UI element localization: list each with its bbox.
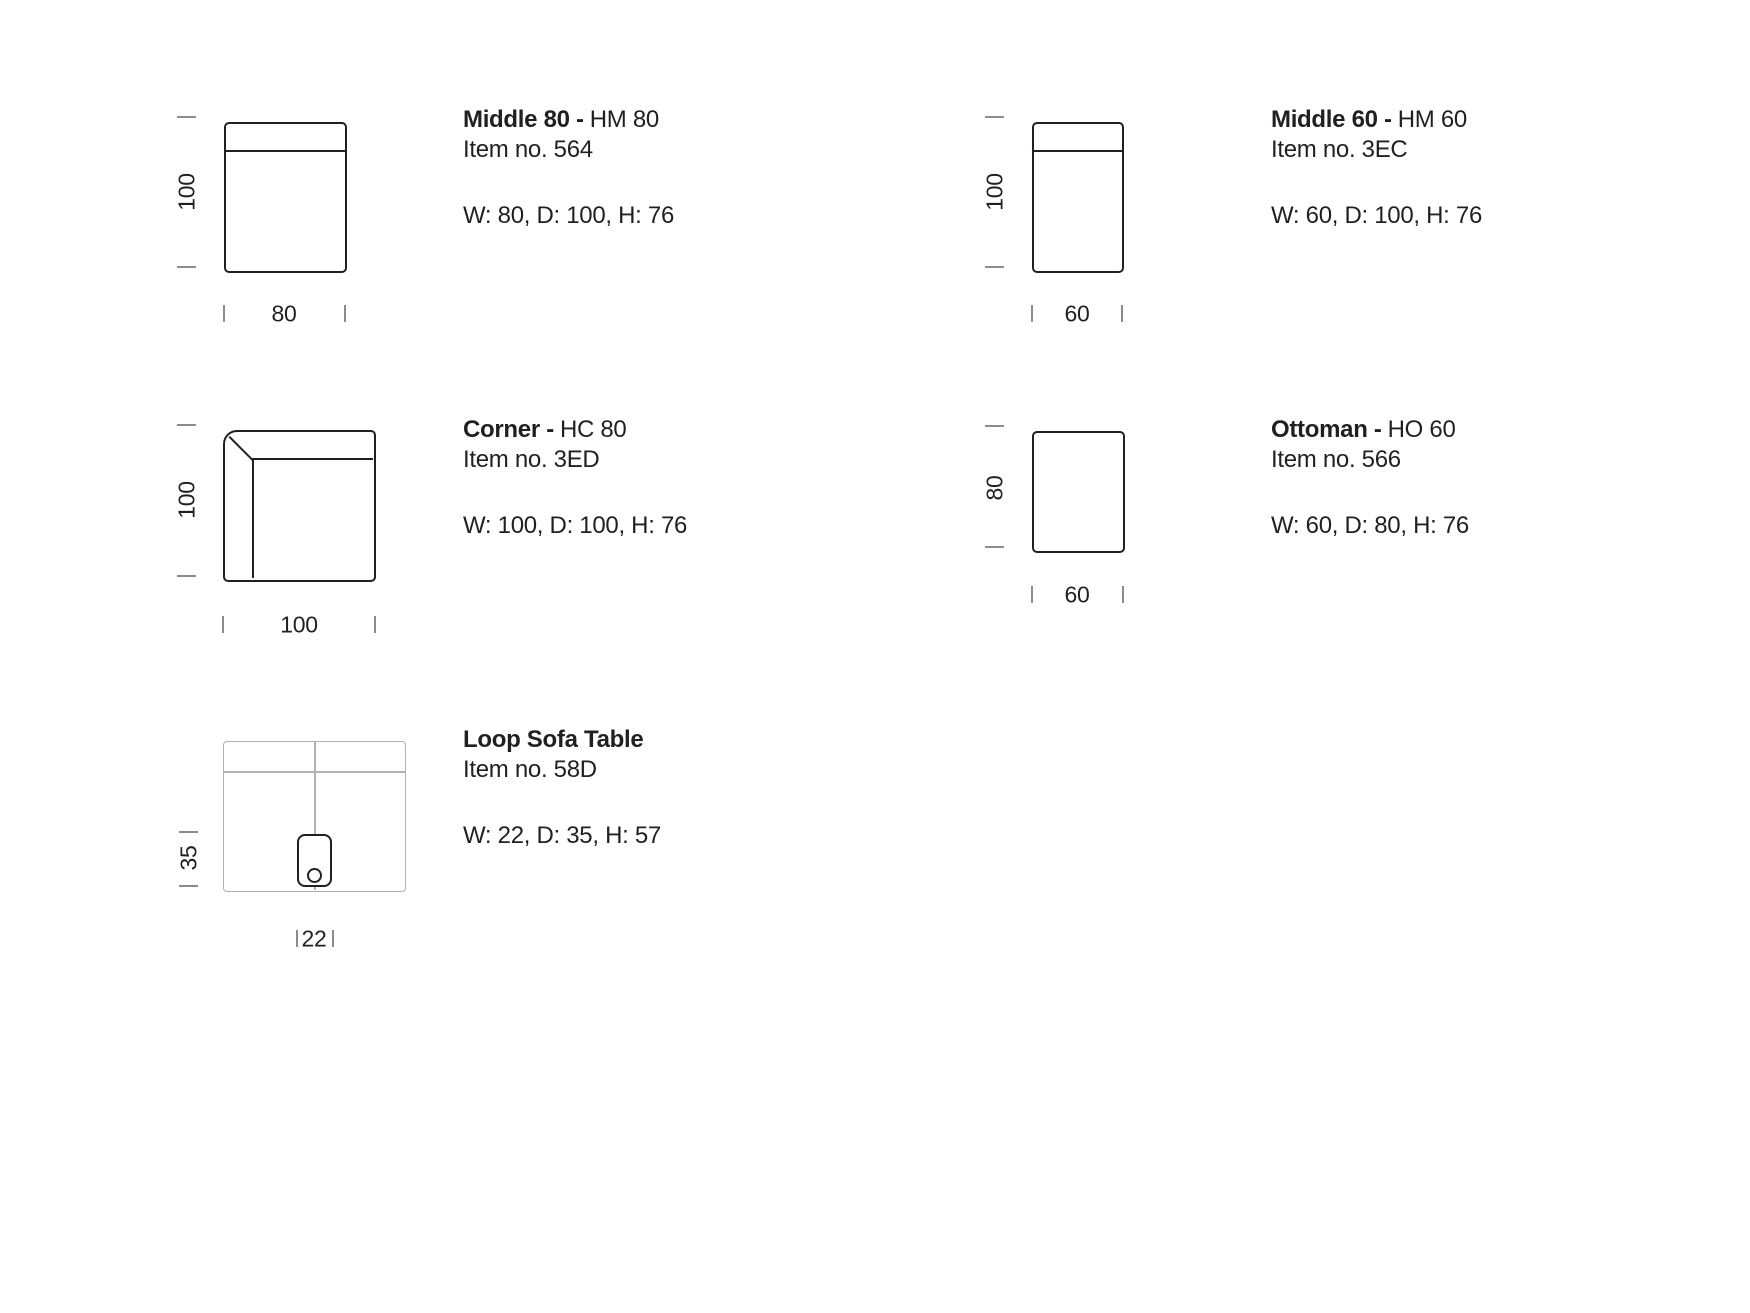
middle-80-width-label: 80	[272, 301, 297, 328]
middle-60-depth-tick-top	[985, 116, 1004, 118]
ottoman-depth-tick-top	[985, 425, 1004, 427]
corner-width-tick-right	[374, 616, 376, 633]
spec-sheet-page: 100 80 Middle 80 -HM 80 Item no. 564 W: …	[0, 0, 1750, 1313]
ottoman-title: Ottoman -HO 60	[1271, 416, 1456, 444]
corner-title: Corner -HC 80	[463, 416, 626, 444]
middle-60-title: Middle 60 -HM 60	[1271, 106, 1467, 134]
product-code: HC 80	[560, 416, 627, 443]
corner-width-label: 100	[280, 612, 317, 639]
middle-80-depth-label: 100	[174, 173, 201, 210]
corner-backrest-inner-horizontal-line	[252, 458, 373, 460]
corner-specs: W: 100, D: 100, H: 76	[463, 512, 687, 540]
corner-depth-tick-bottom	[177, 575, 196, 577]
middle-60-item-number: Item no. 3EC	[1271, 136, 1407, 164]
corner-backrest-inner-vertical-line	[252, 458, 254, 578]
middle-60-width-label: 60	[1065, 301, 1090, 328]
middle-80-outline	[224, 122, 347, 273]
ottoman-width-tick-right	[1122, 586, 1124, 603]
corner-item-number: Item no. 3ED	[463, 446, 599, 474]
middle-80-width-tick-right	[344, 305, 346, 322]
corner-depth-tick-top	[177, 424, 196, 426]
product-name: Loop Sofa Table	[463, 726, 643, 753]
middle-60-specs: W: 60, D: 100, H: 76	[1271, 202, 1482, 230]
loop-title: Loop Sofa Table	[463, 726, 649, 754]
product-name: Middle 60 -	[1271, 106, 1392, 133]
loop-table-detail-circle	[307, 868, 322, 883]
loop-depth-tick-bottom	[179, 885, 198, 887]
ottoman-specs: W: 60, D: 80, H: 76	[1271, 512, 1469, 540]
product-name: Corner -	[463, 416, 554, 443]
ottoman-depth-tick-bottom	[985, 546, 1004, 548]
product-name: Middle 80 -	[463, 106, 584, 133]
product-code: HM 80	[590, 106, 659, 133]
ottoman-width-tick-left	[1031, 586, 1033, 603]
product-code: HM 60	[1398, 106, 1467, 133]
middle-60-depth-tick-bottom	[985, 266, 1004, 268]
loop-width-label: 22	[302, 926, 327, 953]
product-name: Ottoman -	[1271, 416, 1382, 443]
corner-depth-label: 100	[174, 481, 201, 518]
middle-80-specs: W: 80, D: 100, H: 76	[463, 202, 674, 230]
middle-60-width-tick-left	[1031, 305, 1033, 322]
middle-60-depth-label: 100	[982, 173, 1009, 210]
middle-60-outline	[1032, 122, 1124, 273]
middle-80-item-number: Item no. 564	[463, 136, 593, 164]
ottoman-item-number: Item no. 566	[1271, 446, 1401, 474]
loop-item-number: Item no. 58D	[463, 756, 597, 784]
product-code: HO 60	[1388, 416, 1456, 443]
loop-specs: W: 22, D: 35, H: 57	[463, 822, 661, 850]
middle-80-seat-divider-line	[226, 150, 345, 152]
middle-80-width-tick-left	[223, 305, 225, 322]
ottoman-outline	[1032, 431, 1125, 553]
middle-60-seat-divider-line	[1034, 150, 1122, 152]
loop-width-tick-right	[332, 930, 334, 947]
middle-80-depth-tick-bottom	[177, 266, 196, 268]
ottoman-depth-label: 80	[982, 476, 1009, 501]
corner-width-tick-left	[222, 616, 224, 633]
loop-depth-label: 35	[176, 846, 203, 871]
middle-60-width-tick-right	[1121, 305, 1123, 322]
ottoman-width-label: 60	[1065, 582, 1090, 609]
loop-depth-tick-top	[179, 831, 198, 833]
middle-80-depth-tick-top	[177, 116, 196, 118]
middle-80-title: Middle 80 -HM 80	[463, 106, 659, 134]
loop-width-tick-left	[296, 930, 298, 947]
